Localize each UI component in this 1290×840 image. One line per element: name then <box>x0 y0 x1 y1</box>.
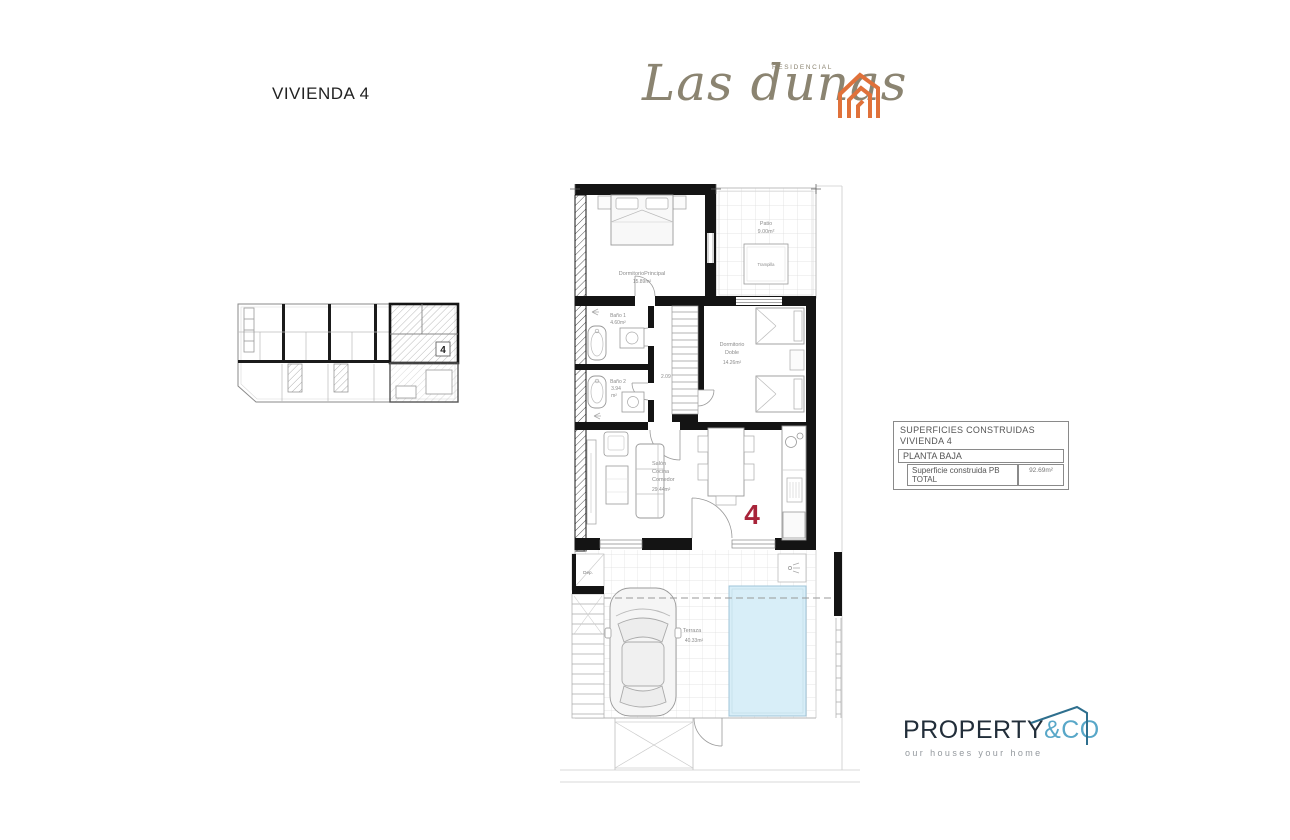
siteplan-unit-number: 4 <box>440 345 446 356</box>
trampilla-label: Trampilla <box>757 262 775 267</box>
car-mirror <box>675 628 681 638</box>
car-mirror <box>605 628 611 638</box>
summary-table: SUPERFICIES CONSTRUIDAS VIVIENDA 4 PLANT… <box>893 421 1069 490</box>
salon-cocina-comedor: Salón Cocina Comedor 29.44m² 4 <box>587 426 806 540</box>
salon-label1: Salón <box>652 461 666 467</box>
summary-title-line2: VIVIENDA 4 <box>900 436 1062 447</box>
shower-head-icon <box>592 309 599 315</box>
chair <box>744 436 754 452</box>
summary-total-label: Superficie construida PB TOTAL <box>907 464 1018 486</box>
pool <box>729 586 806 716</box>
bano1-label: Baño 1 <box>610 313 626 319</box>
terraza: Dep. Terraza <box>572 550 842 718</box>
agency-brand: PROPERTY&CO our houses your home <box>903 716 1103 758</box>
dormitorio-doble-area: 14.26m² <box>723 360 742 366</box>
dormitorio-doble: Dormitorio Doble 14.26m² <box>720 308 804 412</box>
corridor-dimension: 2.09 <box>661 374 671 380</box>
gate-door <box>694 718 722 746</box>
roof-outline-icon <box>1029 703 1103 747</box>
summary-planta-row: PLANTA BAJA <box>898 449 1064 463</box>
floor-plan: Patio 9.00m² Trampilla <box>560 178 860 796</box>
outdoor-shower <box>778 554 806 582</box>
dormitorio-principal-area: 15.89m² <box>633 279 652 285</box>
dormitorio-principal-label: DormitorioPrincipal <box>619 271 665 277</box>
bano-1: Baño 1 4.60m² <box>588 309 644 360</box>
driveway <box>560 718 860 782</box>
coffee-table <box>606 466 628 504</box>
bano2-label: Baño 2 <box>610 379 626 385</box>
dep-room: Dep. <box>572 554 604 590</box>
property-boundary <box>816 186 842 770</box>
railing <box>836 618 841 718</box>
stairs-exterior <box>572 590 604 718</box>
agency-name-primary: PROPERTY <box>903 716 1044 744</box>
salon-label2: Cocina <box>652 469 670 475</box>
residencial-brand: Las dunas RESIDENCIAL <box>642 52 892 142</box>
terraza-label: Terraza <box>683 628 702 634</box>
chair <box>698 436 708 452</box>
vanity <box>622 392 644 412</box>
tv-unit <box>587 440 596 524</box>
nightstand <box>673 196 686 209</box>
armchair <box>604 432 628 456</box>
bano2-area-value: 3.94 <box>611 386 621 392</box>
shower-head-icon <box>594 413 601 419</box>
agency-tagline: our houses your home <box>905 748 1103 758</box>
chair <box>744 464 754 480</box>
chair <box>716 496 736 505</box>
stairs-interior <box>672 306 698 414</box>
bano-2: Baño 2 3.94 m² <box>588 376 644 419</box>
dormitorio-doble-label1: Dormitorio <box>720 342 745 348</box>
fridge <box>783 512 805 538</box>
vanity <box>620 328 644 348</box>
dining-table <box>708 428 744 496</box>
page-title: VIVIENDA 4 <box>272 84 370 104</box>
salon-area: 29.44m² <box>652 487 671 493</box>
patio: Patio 9.00m² Trampilla <box>716 188 816 298</box>
chair <box>698 464 708 480</box>
summary-total-row: Superficie construida PB TOTAL 92.69m² <box>907 464 1064 486</box>
unit-number: 4 <box>744 499 760 530</box>
dunes-house-icon <box>834 68 882 122</box>
car <box>605 588 681 716</box>
brand-subtitle: RESIDENCIAL <box>772 64 833 71</box>
siteplan-highlighted-unit: 4 <box>390 304 458 402</box>
summary-title-line1: SUPERFICIES CONSTRUIDAS <box>900 425 1062 436</box>
bano1-area: 4.60m² <box>610 320 626 326</box>
nightstand <box>598 196 611 209</box>
nightstand <box>790 350 804 370</box>
privacy-wall <box>834 552 842 616</box>
patio-area: 9.00m² <box>758 229 775 235</box>
patio-label: Patio <box>760 221 772 227</box>
dep-label: Dep. <box>583 570 593 575</box>
dormitorio-principal: DormitorioPrincipal 15.89m² <box>598 195 686 285</box>
site-key-plan: 4 <box>230 298 466 410</box>
salon-label3: Comedor <box>652 477 675 483</box>
terraza-area: 40.33m² <box>685 638 704 644</box>
summary-total-value: 92.69m² <box>1018 464 1064 486</box>
dormitorio-doble-label2: Doble <box>725 350 739 356</box>
bano2-area-unit: m² <box>611 393 617 399</box>
